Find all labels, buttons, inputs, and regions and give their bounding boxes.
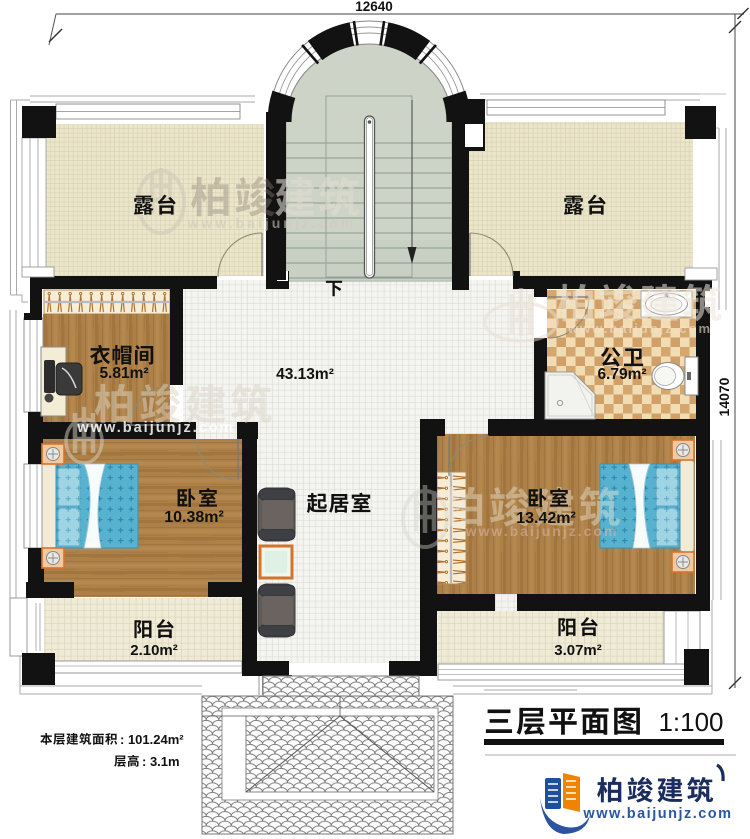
svg-text:43.13m²: 43.13m² xyxy=(276,366,334,383)
svg-text:www.baijunjz.com: www.baijunjz.com xyxy=(187,215,357,231)
svg-text:6.79m²: 6.79m² xyxy=(597,366,646,383)
svg-text:14070: 14070 xyxy=(716,377,732,416)
svg-text:www.baijunjz.com: www.baijunjz.com xyxy=(76,420,234,436)
svg-text:2.10m²: 2.10m² xyxy=(130,642,178,659)
svg-text:1:100: 1:100 xyxy=(658,707,723,737)
svg-text:12640: 12640 xyxy=(355,0,393,14)
svg-text:10.38m²: 10.38m² xyxy=(164,509,224,526)
svg-text:: 101.24m²: : 101.24m² xyxy=(120,732,184,747)
svg-text:: 3.1m: : 3.1m xyxy=(142,754,180,769)
svg-text:3.07m²: 3.07m² xyxy=(554,642,602,659)
svg-text:13.42m²: 13.42m² xyxy=(516,510,576,527)
svg-text:www.baijunjz.com: www.baijunjz.com xyxy=(567,321,712,336)
svg-text:www.baijunjz.com: www.baijunjz.com xyxy=(582,806,732,822)
svg-text:5.81m²: 5.81m² xyxy=(99,365,148,382)
